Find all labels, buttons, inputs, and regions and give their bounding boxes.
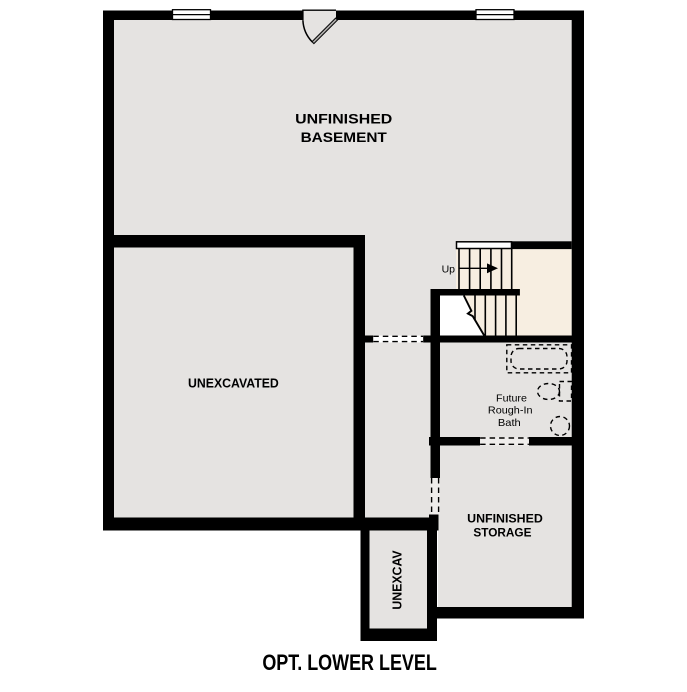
- svg-text:Future: Future: [496, 393, 527, 405]
- svg-text:STORAGE: STORAGE: [473, 526, 531, 539]
- svg-text:UNEXCAVATED: UNEXCAVATED: [188, 376, 279, 391]
- svg-text:UNEXCAV: UNEXCAV: [390, 550, 405, 610]
- svg-text:UNFINISHED: UNFINISHED: [295, 111, 392, 126]
- svg-text:Rough-In: Rough-In: [488, 405, 533, 417]
- svg-text:OPT. LOWER LEVEL: OPT. LOWER LEVEL: [262, 650, 437, 675]
- svg-text:UNFINISHED: UNFINISHED: [467, 513, 543, 526]
- svg-text:Bath: Bath: [498, 417, 521, 429]
- svg-text:BASEMENT: BASEMENT: [301, 130, 388, 145]
- svg-text:Up: Up: [442, 263, 456, 275]
